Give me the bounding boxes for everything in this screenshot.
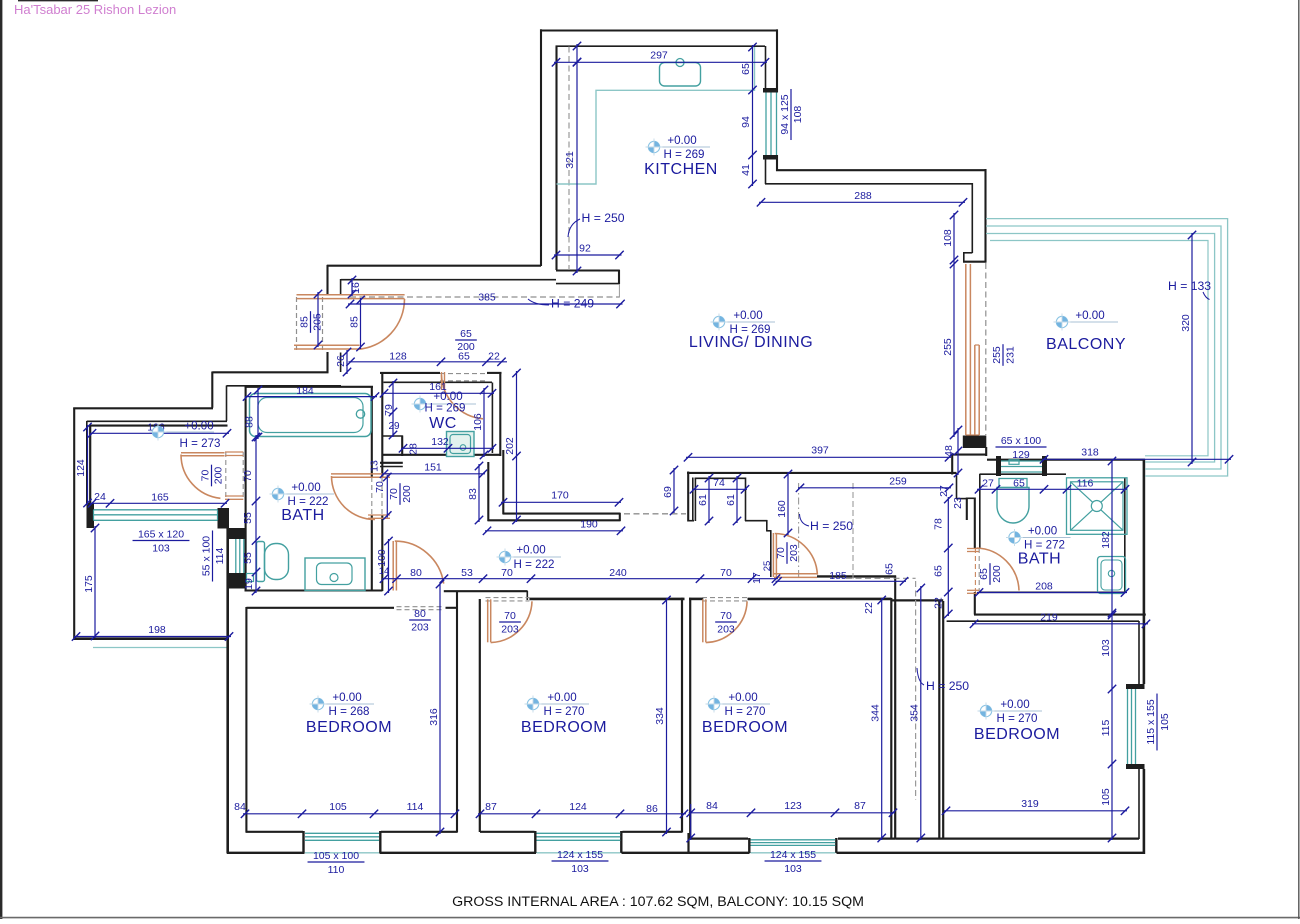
- svg-text:BEDROOM: BEDROOM: [521, 719, 607, 736]
- svg-text:65: 65: [933, 565, 945, 577]
- svg-text:114: 114: [407, 801, 424, 813]
- svg-text:H = 222: H = 222: [514, 558, 555, 571]
- svg-text:86: 86: [646, 803, 658, 815]
- svg-text:H = 270: H = 270: [997, 712, 1038, 725]
- svg-text:+0.00: +0.00: [332, 691, 361, 704]
- svg-text:203: 203: [501, 624, 519, 636]
- svg-text:13: 13: [369, 460, 381, 472]
- svg-text:334: 334: [654, 707, 666, 725]
- svg-text:108: 108: [942, 229, 954, 247]
- svg-text:H = 250: H = 250: [810, 519, 853, 533]
- svg-text:H = 268: H = 268: [329, 705, 370, 718]
- svg-text:53: 53: [461, 567, 473, 579]
- svg-text:105 x 100: 105 x 100: [313, 850, 359, 862]
- svg-text:320: 320: [1180, 314, 1192, 332]
- svg-text:124: 124: [75, 459, 87, 477]
- svg-text:41: 41: [740, 164, 752, 176]
- svg-text:203: 203: [717, 624, 735, 636]
- svg-text:27: 27: [938, 485, 950, 497]
- svg-text:70: 70: [388, 488, 400, 500]
- svg-text:87: 87: [485, 801, 497, 813]
- svg-text:19: 19: [243, 578, 255, 590]
- svg-text:H = 133: H = 133: [1168, 279, 1211, 293]
- svg-text:85: 85: [349, 316, 361, 328]
- svg-text:23: 23: [952, 497, 964, 509]
- svg-text:65: 65: [884, 563, 896, 575]
- svg-text:80: 80: [414, 608, 426, 620]
- svg-text:297: 297: [650, 50, 668, 62]
- svg-text:BATH: BATH: [281, 507, 324, 524]
- svg-text:124 x 155: 124 x 155: [770, 849, 816, 861]
- svg-text:203: 203: [788, 544, 800, 562]
- svg-text:BEDROOM: BEDROOM: [702, 719, 788, 736]
- svg-text:65: 65: [1013, 478, 1025, 490]
- svg-text:22: 22: [488, 350, 500, 362]
- svg-text:397: 397: [811, 445, 829, 457]
- svg-text:14: 14: [379, 566, 390, 577]
- svg-text:+0.00: +0.00: [1000, 698, 1029, 711]
- svg-text:94 x 125: 94 x 125: [779, 94, 791, 134]
- svg-text:110: 110: [328, 864, 345, 876]
- svg-text:100: 100: [376, 549, 388, 567]
- svg-text:84: 84: [234, 801, 246, 813]
- svg-text:+0.00: +0.00: [291, 481, 320, 494]
- svg-text:318: 318: [1081, 447, 1099, 459]
- svg-text:103: 103: [571, 863, 589, 875]
- svg-text:124: 124: [569, 801, 587, 813]
- svg-text:255: 255: [991, 346, 1003, 364]
- svg-text:80: 80: [410, 567, 422, 579]
- svg-text:BEDROOM: BEDROOM: [306, 719, 392, 736]
- svg-text:+0.00: +0.00: [1075, 309, 1104, 322]
- svg-text:129: 129: [1012, 449, 1030, 461]
- svg-text:165 x 120: 165 x 120: [138, 529, 184, 541]
- svg-text:BALCONY: BALCONY: [1046, 336, 1126, 353]
- svg-text:55 x 100: 55 x 100: [201, 536, 213, 576]
- svg-text:28: 28: [408, 443, 420, 455]
- svg-text:H = 270: H = 270: [725, 705, 766, 718]
- svg-text:87: 87: [854, 800, 866, 812]
- svg-text:+0.00: +0.00: [184, 420, 213, 433]
- svg-text:55: 55: [242, 512, 254, 524]
- svg-text:184: 184: [296, 385, 314, 397]
- svg-text:65: 65: [460, 328, 472, 340]
- svg-text:70: 70: [200, 470, 212, 482]
- svg-text:84: 84: [706, 800, 718, 812]
- svg-text:175: 175: [83, 575, 95, 593]
- svg-text:203: 203: [411, 622, 429, 634]
- svg-text:WC: WC: [429, 415, 457, 432]
- svg-text:H = 273: H = 273: [180, 437, 221, 450]
- svg-text:70: 70: [501, 567, 513, 579]
- svg-text:385: 385: [478, 292, 496, 304]
- svg-text:LIVING/ DINING: LIVING/ DINING: [689, 334, 813, 351]
- svg-text:103: 103: [1100, 639, 1112, 657]
- svg-text:105: 105: [329, 801, 347, 813]
- svg-text:185: 185: [829, 570, 847, 582]
- svg-text:70: 70: [775, 547, 787, 559]
- svg-text:114: 114: [214, 547, 226, 564]
- svg-text:106: 106: [472, 413, 484, 431]
- svg-text:17: 17: [751, 572, 763, 584]
- svg-text:103: 103: [152, 543, 170, 555]
- svg-text:88: 88: [244, 416, 256, 428]
- svg-text:26: 26: [335, 355, 347, 367]
- svg-text:190: 190: [580, 519, 598, 531]
- svg-text:70: 70: [504, 610, 516, 622]
- svg-text:128: 128: [389, 350, 407, 362]
- svg-text:GROSS INTERNAL AREA : 107.62 S: GROSS INTERNAL AREA : 107.62 SQM, BALCON…: [452, 894, 864, 910]
- svg-text:200: 200: [401, 485, 413, 503]
- svg-text:160: 160: [776, 500, 788, 518]
- svg-text:123: 123: [784, 800, 802, 812]
- svg-text:55: 55: [242, 552, 254, 564]
- svg-text:48: 48: [943, 445, 955, 457]
- svg-text:200: 200: [457, 341, 475, 353]
- svg-text:H = 250: H = 250: [582, 211, 625, 225]
- svg-text:124 x 155: 124 x 155: [557, 849, 603, 861]
- svg-text:+0.00: +0.00: [728, 691, 757, 704]
- svg-text:115 x 155: 115 x 155: [1145, 699, 1157, 745]
- svg-text:132: 132: [431, 436, 449, 448]
- svg-text:H = 270: H = 270: [544, 705, 585, 718]
- svg-text:65 x 100: 65 x 100: [1001, 435, 1041, 447]
- svg-text:+0.00: +0.00: [1028, 525, 1057, 538]
- svg-text:105: 105: [1159, 713, 1171, 731]
- svg-text:354: 354: [909, 704, 921, 722]
- svg-text:83: 83: [467, 488, 479, 500]
- svg-text:200: 200: [213, 467, 225, 485]
- svg-text:H = 269: H = 269: [425, 402, 466, 415]
- svg-text:182: 182: [1100, 531, 1112, 549]
- svg-text:92: 92: [579, 243, 591, 255]
- svg-text:25: 25: [762, 561, 773, 572]
- svg-text:+0.00: +0.00: [516, 544, 545, 557]
- svg-text:85: 85: [299, 316, 311, 328]
- svg-text:240: 240: [609, 567, 627, 579]
- svg-text:BATH: BATH: [1018, 551, 1061, 568]
- svg-text:65: 65: [978, 568, 990, 580]
- svg-text:94: 94: [740, 116, 752, 128]
- svg-text:70: 70: [242, 470, 254, 482]
- svg-text:27: 27: [982, 478, 994, 490]
- svg-text:165: 165: [151, 492, 169, 504]
- svg-text:70: 70: [720, 610, 732, 622]
- svg-text:29: 29: [388, 421, 400, 432]
- svg-text:321: 321: [564, 151, 576, 169]
- svg-text:115: 115: [1100, 719, 1112, 736]
- svg-text:79: 79: [383, 404, 395, 416]
- svg-text:202: 202: [504, 437, 516, 455]
- svg-text:255: 255: [942, 338, 954, 356]
- svg-text:H = 250: H = 250: [926, 679, 969, 693]
- svg-text:78: 78: [933, 518, 945, 530]
- svg-text:198: 198: [148, 624, 166, 636]
- svg-text:208: 208: [1035, 581, 1053, 593]
- svg-text:151: 151: [424, 462, 442, 474]
- svg-text:288: 288: [854, 190, 872, 202]
- svg-text:+0.00: +0.00: [667, 134, 696, 147]
- svg-text:22: 22: [933, 597, 945, 609]
- svg-text:+0.00: +0.00: [733, 309, 762, 322]
- svg-text:316: 316: [428, 708, 440, 726]
- svg-text:344: 344: [870, 704, 882, 722]
- svg-text:105: 105: [1100, 788, 1112, 806]
- svg-text:74: 74: [713, 477, 725, 489]
- svg-text:H = 249: H = 249: [551, 297, 594, 311]
- svg-text:BEDROOM: BEDROOM: [974, 726, 1060, 743]
- svg-text:61: 61: [697, 494, 709, 506]
- svg-text:116: 116: [1077, 478, 1094, 490]
- svg-text:70: 70: [720, 567, 732, 579]
- svg-text:24: 24: [94, 491, 106, 503]
- svg-text:61: 61: [725, 494, 737, 506]
- svg-text:69: 69: [662, 486, 674, 498]
- svg-text:231: 231: [1005, 346, 1017, 364]
- svg-text:+0.00: +0.00: [547, 691, 576, 704]
- svg-text:H = 269: H = 269: [664, 148, 705, 161]
- svg-text:259: 259: [889, 476, 907, 488]
- svg-text:219: 219: [1040, 612, 1058, 624]
- svg-text:200: 200: [991, 565, 1003, 583]
- svg-text:319: 319: [1021, 798, 1039, 810]
- svg-text:KITCHEN: KITCHEN: [644, 161, 718, 178]
- svg-text:65: 65: [740, 63, 752, 75]
- svg-text:103: 103: [784, 863, 802, 875]
- svg-text:70: 70: [374, 481, 386, 493]
- svg-text:Ha'Tsabar 25 Rishon Lezion: Ha'Tsabar 25 Rishon Lezion: [14, 2, 176, 17]
- svg-text:170: 170: [551, 490, 569, 502]
- svg-text:22: 22: [863, 602, 875, 614]
- svg-text:108: 108: [792, 106, 804, 124]
